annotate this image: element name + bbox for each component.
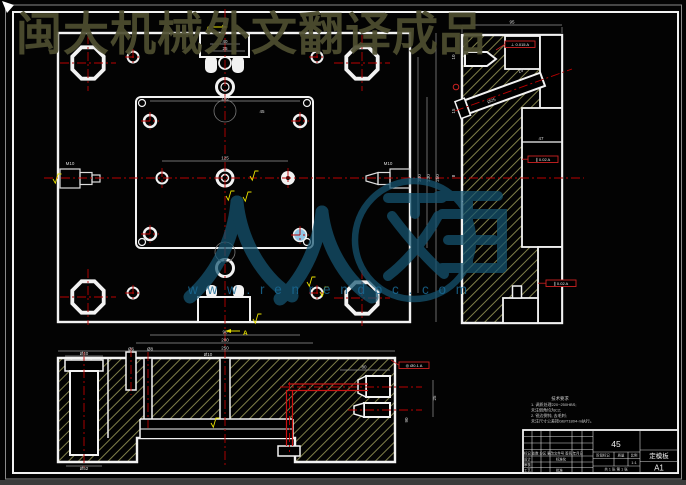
dim-label: 25 <box>432 395 437 401</box>
top-banner-watermark: 闽大机械外文翻译成品 <box>16 8 486 60</box>
gdt-text: ∥ 0.02 A <box>536 157 551 162</box>
dim-label: Ø6 <box>128 347 135 352</box>
stage-label: 阶段标记 <box>596 453 610 458</box>
revision-header-row: 标记 处数 分区 更改文件号 签名 年月日 <box>524 451 583 456</box>
cad-viewport: 40 25 160 125 45 200 230 250 90 200 250 … <box>0 0 686 485</box>
dim-label: 90 <box>404 417 409 423</box>
weight-label: 质量 <box>618 453 625 458</box>
window-edge <box>0 480 686 485</box>
dim-label: M10 <box>384 161 393 166</box>
notes-line: 未注倒角均为C2; <box>531 407 561 413</box>
notes-line: 2. 锐边倒钝, 去毛刺; <box>531 412 567 418</box>
technical-notes: 技术要求 1. 调质处理220~250HBS; 未注倒角均为C2; 2. 锐边倒… <box>531 395 594 424</box>
gdt-text: ⊥ 0.015 A <box>511 42 529 47</box>
dim-label: 8 <box>451 174 456 177</box>
notes-line: 1. 调质处理220~250HBS; <box>531 401 576 407</box>
dim-label: 160 <box>221 96 229 101</box>
notes-title: 技术要求 <box>551 395 569 402</box>
title-block: 45 定模板 A1 标记 处数 分区 更改文件号 签名 年月日 设计 标准化 审… <box>523 430 678 473</box>
dim-label: Ø52 <box>80 466 89 471</box>
dim-label: 250 <box>221 346 229 351</box>
dim-label: 80 <box>361 365 367 370</box>
approve-label: 批准 <box>556 468 563 473</box>
part-name: 定模板 <box>649 451 669 460</box>
scale-label: 比例 <box>631 453 638 458</box>
dim-label: 45 <box>259 109 265 114</box>
section-mark-bottom: A <box>243 330 248 337</box>
gdt-text: ◎ Ø0.1 A <box>406 363 423 368</box>
dim-label: 15 <box>451 108 456 114</box>
process-label: 工艺 <box>524 468 531 473</box>
design-label: 设计 <box>524 457 531 462</box>
dim-label: Ø8 <box>147 347 154 352</box>
sheet-number: A1 <box>654 464 664 473</box>
dim-label: 125 <box>221 156 229 161</box>
dim-label: 90 <box>222 330 228 335</box>
sheet-info: 共 1 张 第 1 张 <box>604 467 628 472</box>
notes-line: 未注尺寸公差按GB/T1804-m执行。 <box>531 418 594 424</box>
dim-label: 250 <box>435 174 440 182</box>
dim-label: 95 <box>509 20 515 25</box>
dim-label: Ø10 <box>204 352 213 357</box>
datum-target-icon <box>453 84 459 90</box>
side-plug-left <box>60 169 100 188</box>
dim-label: 200 <box>221 338 229 343</box>
renren-url-watermark: w w w . r e n r e n d o c . c o m <box>187 282 470 297</box>
scale-value: 1:1 <box>631 460 637 465</box>
material-value: 45 <box>611 439 621 449</box>
dim-label: 47 <box>538 136 544 141</box>
standardize-label: 标准化 <box>556 457 567 462</box>
drawing-canvas: 40 25 160 125 45 200 230 250 90 200 250 … <box>0 0 686 485</box>
audit-label: 审核 <box>524 462 531 467</box>
dim-label: Ø40 <box>80 351 89 356</box>
gdt-text: ∥ 0.02 A <box>554 281 569 286</box>
gdt-frame: ◎ Ø0.1 A <box>391 360 429 369</box>
dim-label: M10 <box>66 161 75 166</box>
bottom-section-view <box>58 352 395 462</box>
